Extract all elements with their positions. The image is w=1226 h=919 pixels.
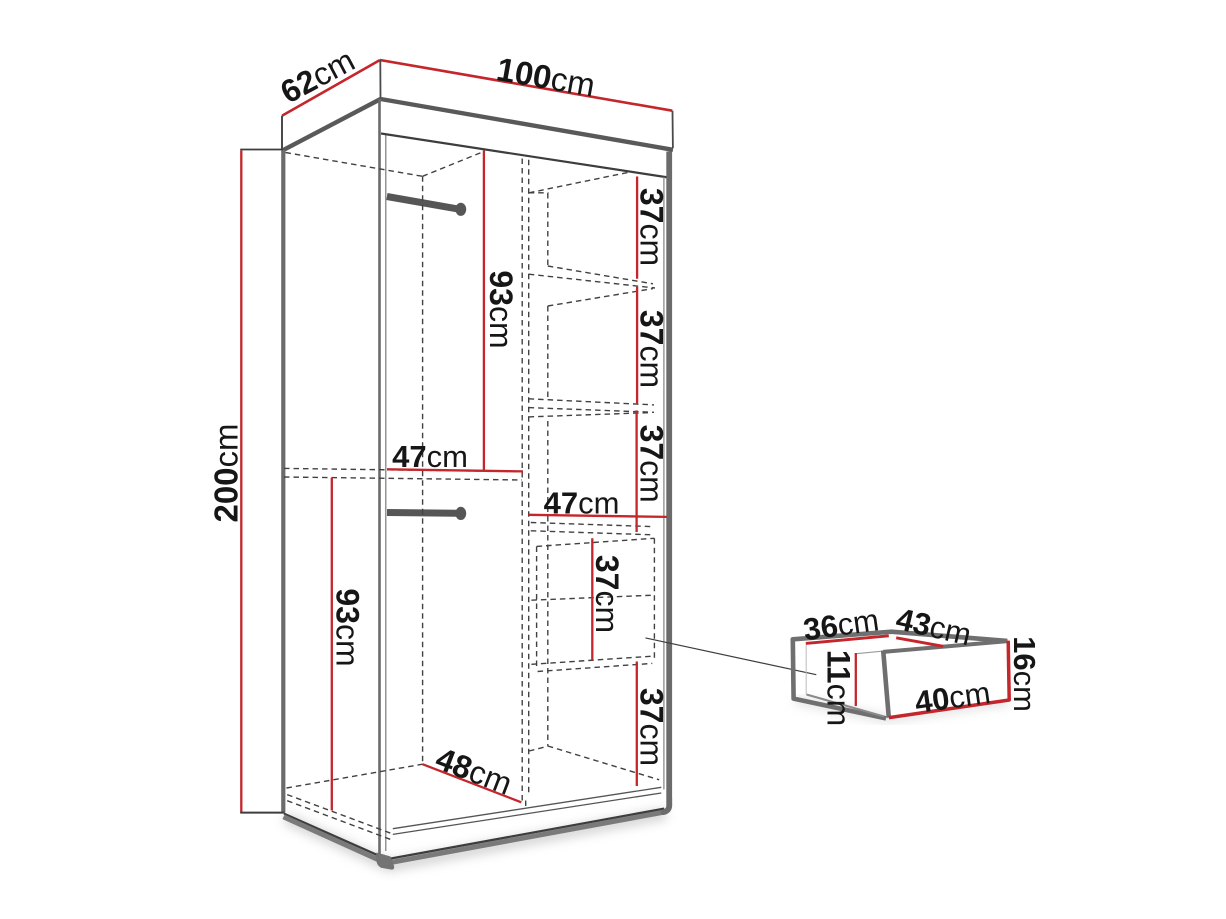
svg-text:37cm: 37cm bbox=[589, 555, 625, 633]
svg-text:47cm: 47cm bbox=[392, 438, 468, 473]
svg-text:37cm: 37cm bbox=[634, 425, 670, 503]
svg-text:37cm: 37cm bbox=[634, 188, 670, 266]
svg-text:11cm: 11cm bbox=[821, 650, 857, 726]
svg-text:16cm: 16cm bbox=[1008, 636, 1043, 712]
svg-text:200cm: 200cm bbox=[207, 423, 244, 522]
svg-text:37cm: 37cm bbox=[634, 310, 670, 388]
svg-text:47cm: 47cm bbox=[544, 485, 620, 520]
svg-text:93cm: 93cm bbox=[330, 588, 366, 666]
svg-text:37cm: 37cm bbox=[634, 688, 670, 766]
svg-text:93cm: 93cm bbox=[483, 270, 519, 348]
